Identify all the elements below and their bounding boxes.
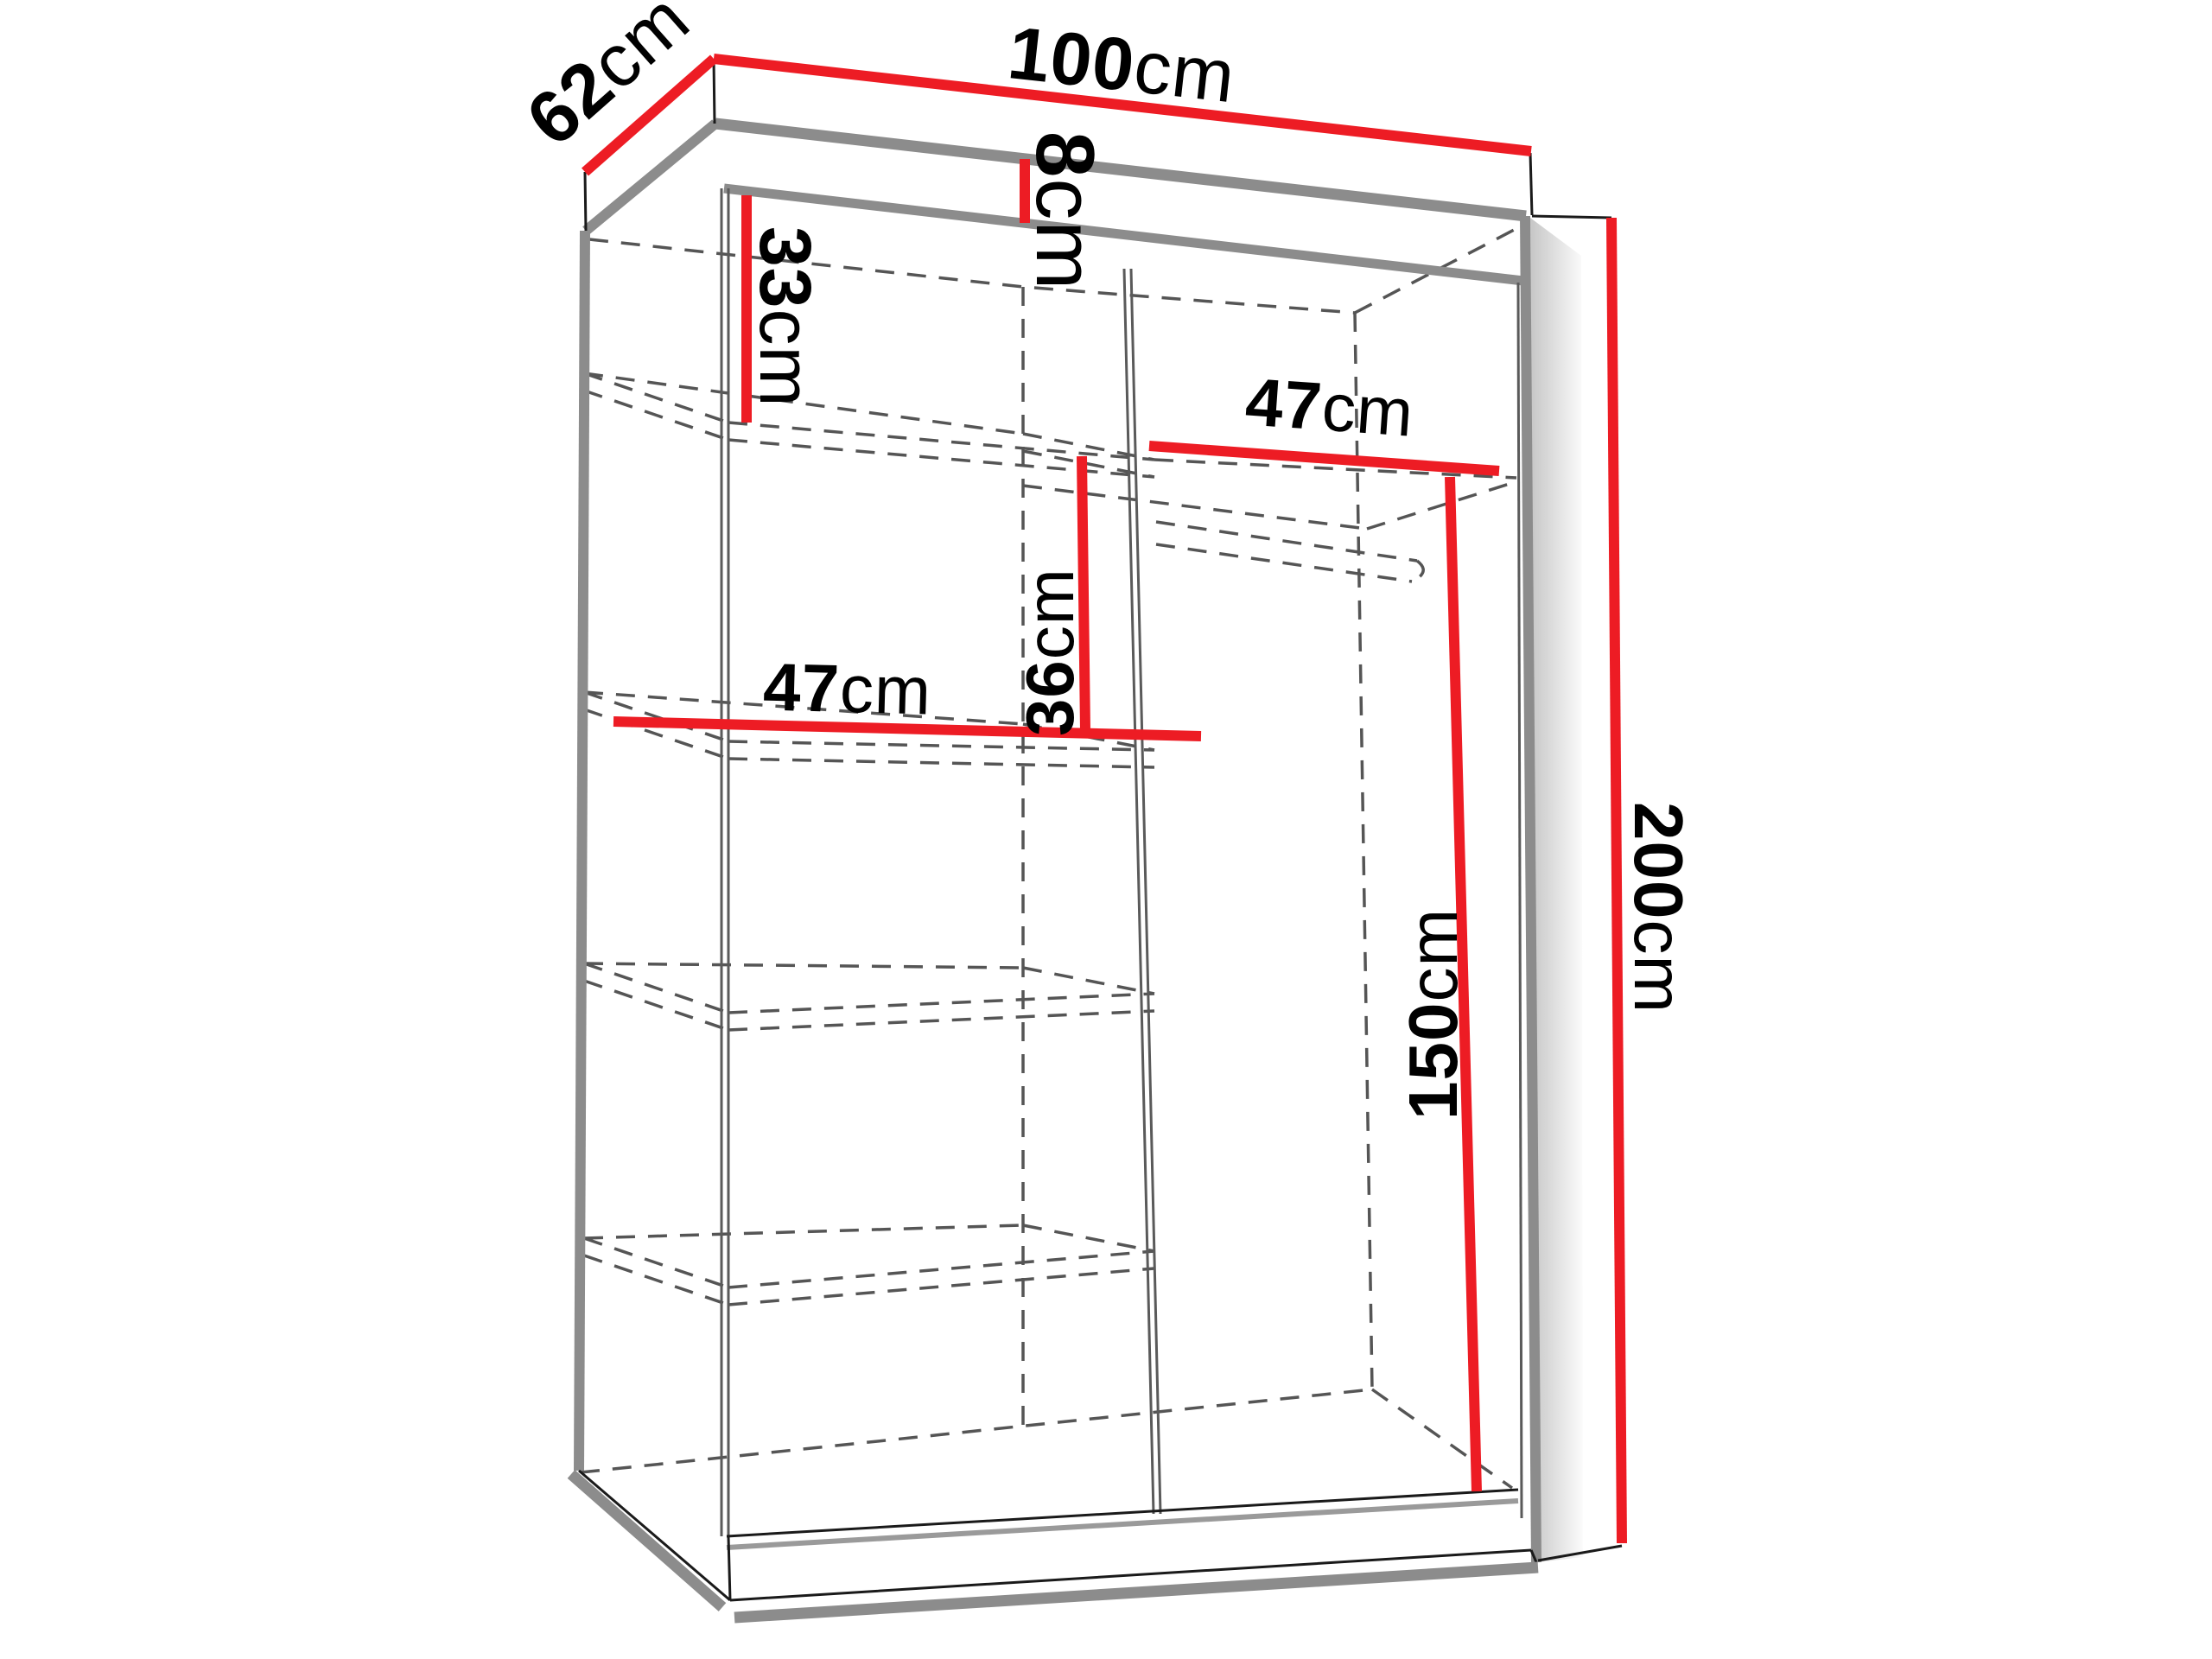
top-panel-left-lower-edge	[586, 124, 715, 231]
floor-front-shadow	[727, 1501, 1518, 1548]
top-panel-right-corner-edge	[1530, 153, 1532, 215]
wardrobe-diagram: 100cm 62cm 8cm 33cm 47cm 36cm 47cm 150cm…	[0, 0, 2212, 1659]
floor-front-edge	[727, 1490, 1518, 1536]
right-wall-inner-edge	[1518, 283, 1522, 1518]
height-dim-connector-top	[1532, 216, 1611, 218]
shelf-3	[584, 963, 1154, 1030]
back-right-corner-edge	[1355, 313, 1372, 1389]
shelf-4	[584, 1225, 1154, 1305]
wardrobe-drawing-canvas: 100cm 62cm 8cm 33cm 47cm 36cm 47cm 150cm…	[0, 0, 2212, 1659]
dim-top-panel-label: 8cm	[1019, 131, 1111, 290]
dim-left-shelf-label: 47cm	[762, 648, 932, 728]
dim-top-section-label: 33cm	[745, 226, 826, 407]
base-left-slope-edge	[579, 1471, 730, 1600]
dim-shelf-gap-label: 36cm	[1012, 568, 1088, 736]
dim-height-label: 200cm	[1620, 802, 1697, 1014]
center-divider	[1124, 269, 1160, 1514]
left-side-panel	[579, 231, 585, 1471]
dim-hanging-label: 150cm	[1395, 908, 1471, 1120]
dim-right-shelf-label: 47cm	[1243, 363, 1416, 450]
left-front-inner-edge	[721, 188, 728, 1536]
base-left-shadow	[571, 1474, 722, 1607]
shelf-1	[584, 373, 1154, 477]
dim-depth-label: 62cm	[512, 0, 705, 162]
dim-width-label: 100cm	[1004, 11, 1239, 118]
hanging-rod	[1156, 522, 1423, 582]
